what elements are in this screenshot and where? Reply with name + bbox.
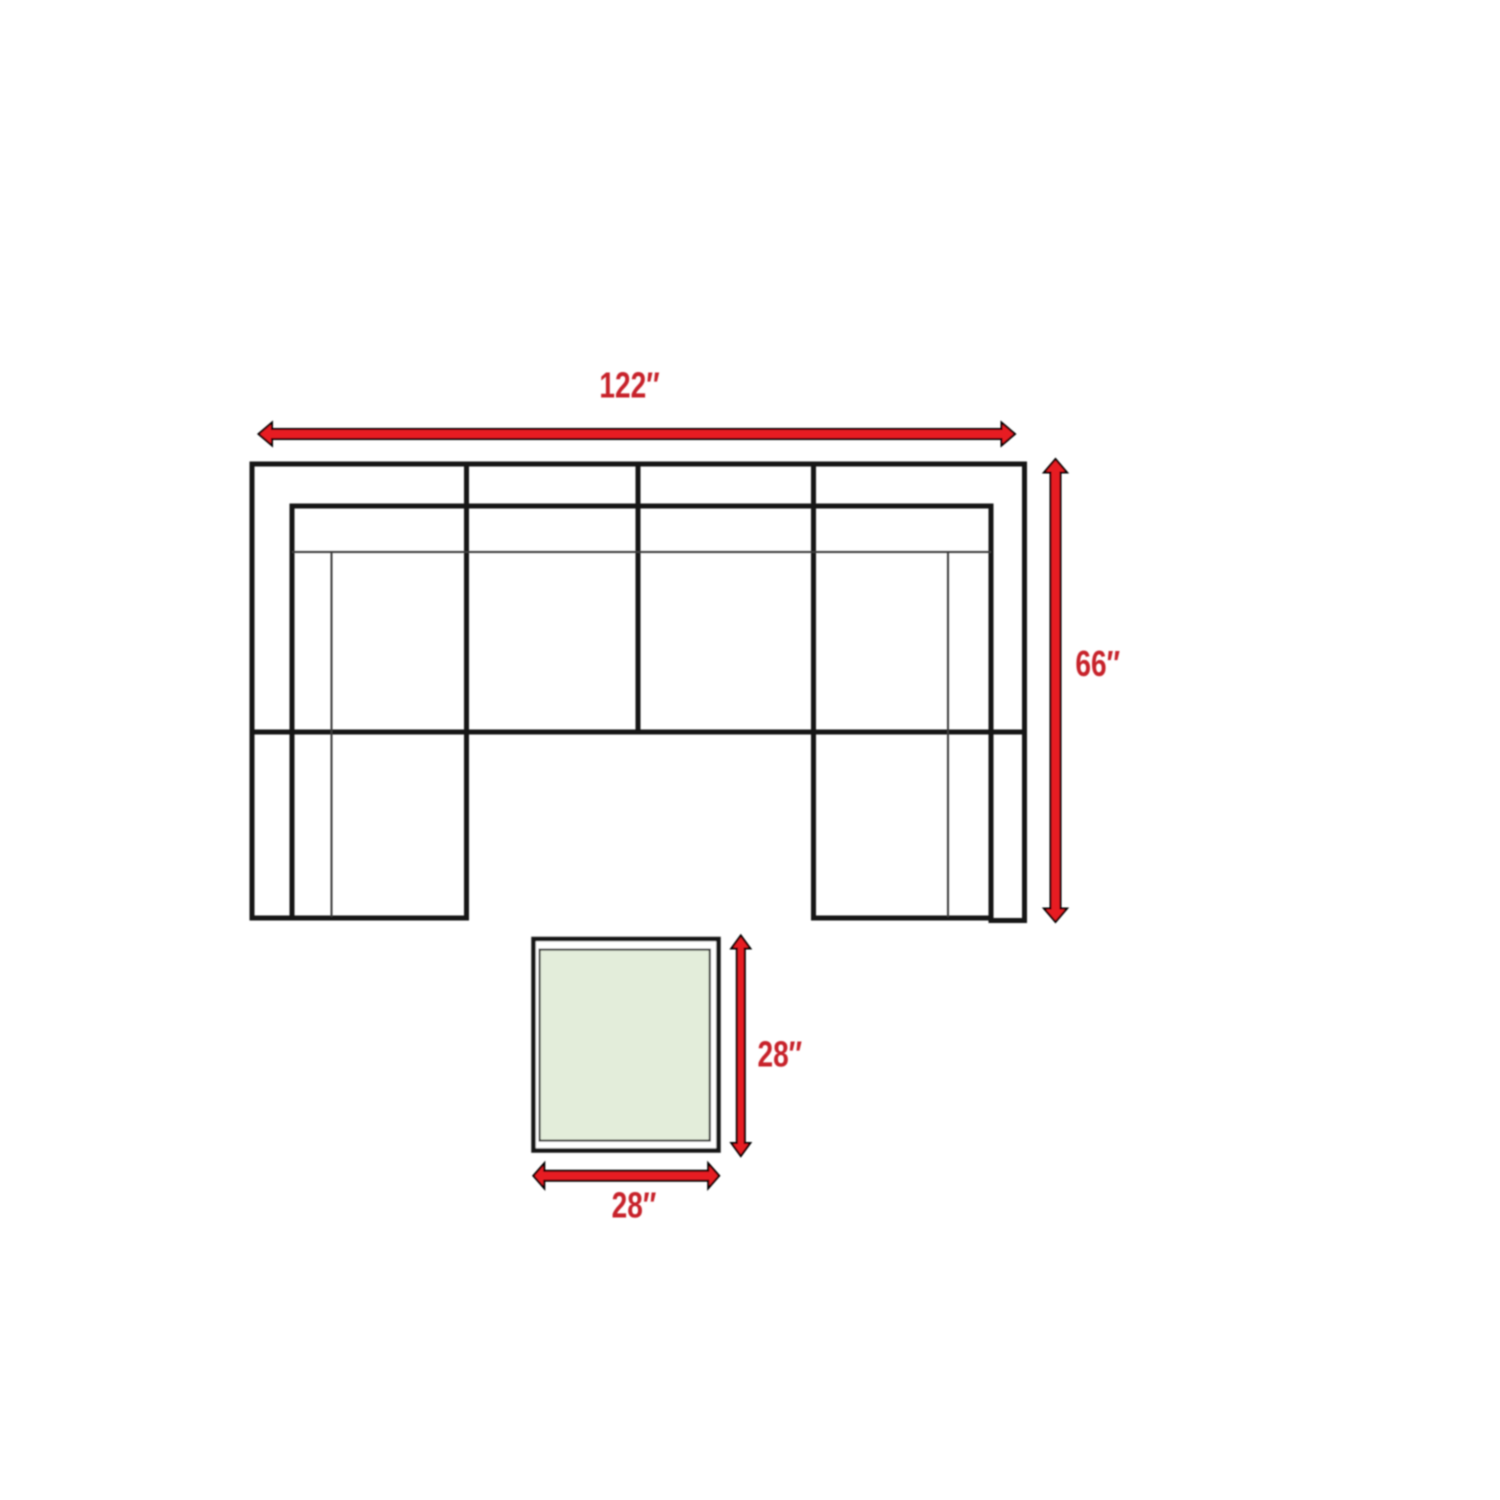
svg-text:122″: 122″ <box>599 365 659 405</box>
svg-text:28″: 28″ <box>612 1185 657 1225</box>
svg-text:28″: 28″ <box>757 1034 802 1074</box>
svg-text:66″: 66″ <box>1075 644 1120 684</box>
